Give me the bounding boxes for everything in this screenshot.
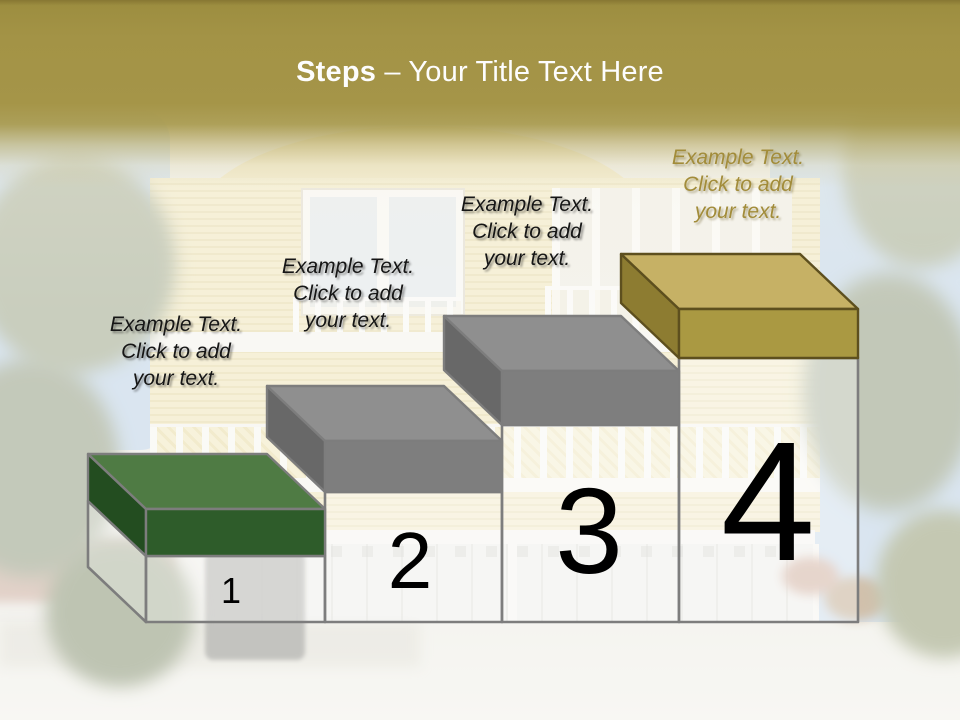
slide: Steps – Your Title Text Here bbox=[0, 0, 960, 720]
step-4-cap bbox=[621, 254, 858, 358]
step-2-cap bbox=[267, 386, 502, 492]
step-2-number: 2 bbox=[388, 516, 433, 605]
step-3-placeholder-text[interactable]: Example Text. Click to add your text. bbox=[412, 191, 642, 272]
step-4-placeholder-text[interactable]: Example Text. Click to add your text. bbox=[623, 144, 853, 225]
step-2-cap-front-face bbox=[325, 441, 502, 492]
step-4-number: 4 bbox=[721, 407, 816, 597]
step-1-cap-front-face bbox=[146, 509, 325, 556]
step-3-cap bbox=[444, 316, 679, 425]
step-4-cap-front-face bbox=[679, 309, 858, 358]
step-3-number: 3 bbox=[555, 463, 623, 599]
step-1-number: 1 bbox=[221, 570, 241, 611]
step-3-cap-front-face bbox=[502, 371, 679, 425]
